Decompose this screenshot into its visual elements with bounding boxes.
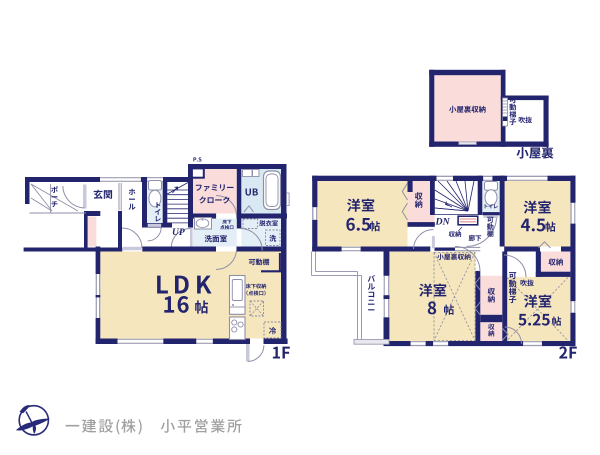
svg-text:DN: DN bbox=[435, 217, 451, 228]
svg-text:UP: UP bbox=[172, 228, 185, 238]
